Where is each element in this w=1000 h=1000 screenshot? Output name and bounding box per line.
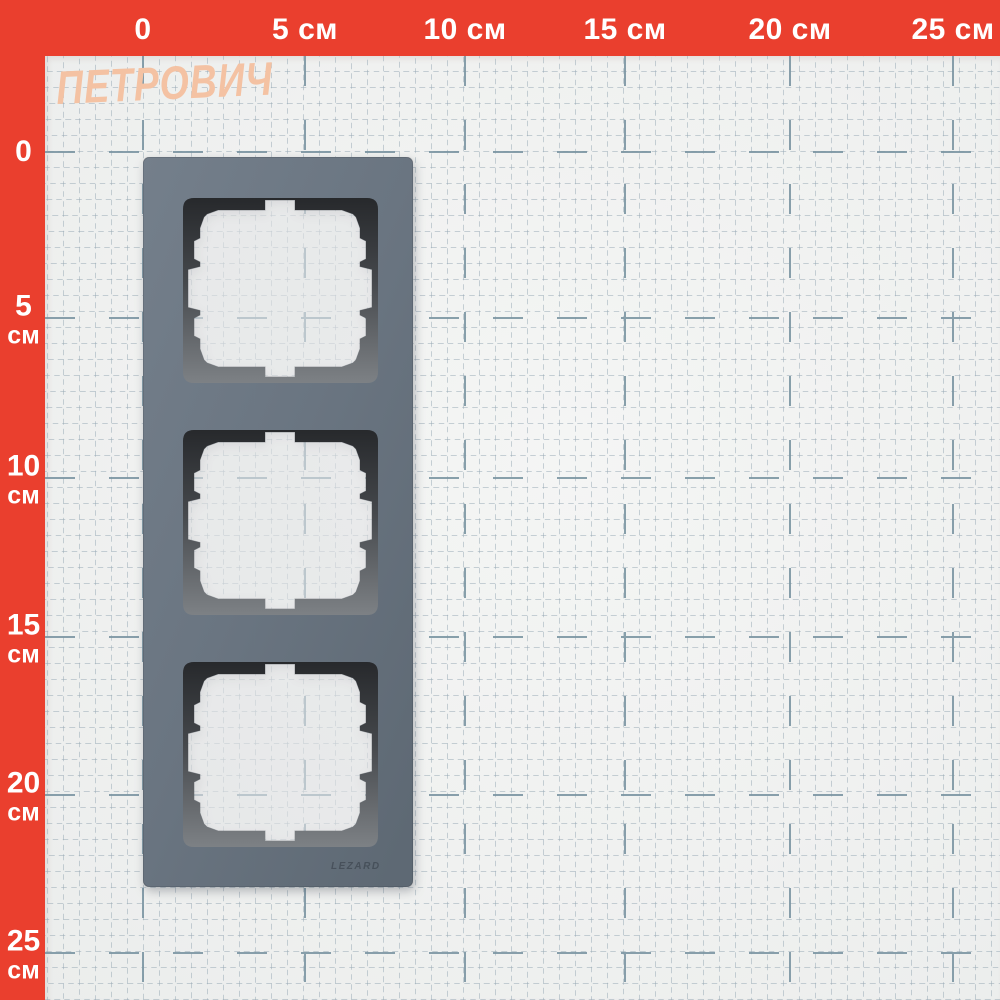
window-openings (188, 200, 372, 841)
ruler-top-label-25: 25 см (911, 13, 994, 47)
ruler-top-label-0: 0 (134, 13, 151, 47)
embossed-brand-text: LEZARD (331, 861, 381, 872)
socket-frame-product: LEZARD (143, 157, 413, 887)
window-hole (188, 664, 372, 841)
ruler-top-label-20: 20 см (748, 13, 831, 47)
ruler-top-label-5: 5 см (272, 13, 338, 47)
ruler-left-label-25: 25 см (0, 927, 47, 984)
ruler-left-label-15: 15 см (0, 611, 47, 668)
window-hole (188, 432, 372, 609)
ruler-left-label-10: 10 см (0, 452, 47, 509)
ruler-left-label-20: 20 см (0, 769, 47, 826)
ruler-vertical: 0 5 см 10 см 15 см 20 см 25 см (0, 0, 45, 1000)
product-photo-scene: ПЕТРОВИЧ 0 5 см 10 см 15 см 20 см 25 см … (0, 0, 1000, 1000)
ruler-top-label-15: 15 см (583, 13, 666, 47)
ruler-left-label-0: 0 (0, 137, 47, 167)
window-hole (188, 200, 372, 377)
ruler-left-label-5: 5 см (0, 292, 47, 349)
ruler-top-label-10: 10 см (423, 13, 506, 47)
store-logo: ПЕТРОВИЧ (55, 51, 274, 115)
ruler-horizontal: 0 5 см 10 см 15 см 20 см 25 см (0, 0, 1000, 56)
